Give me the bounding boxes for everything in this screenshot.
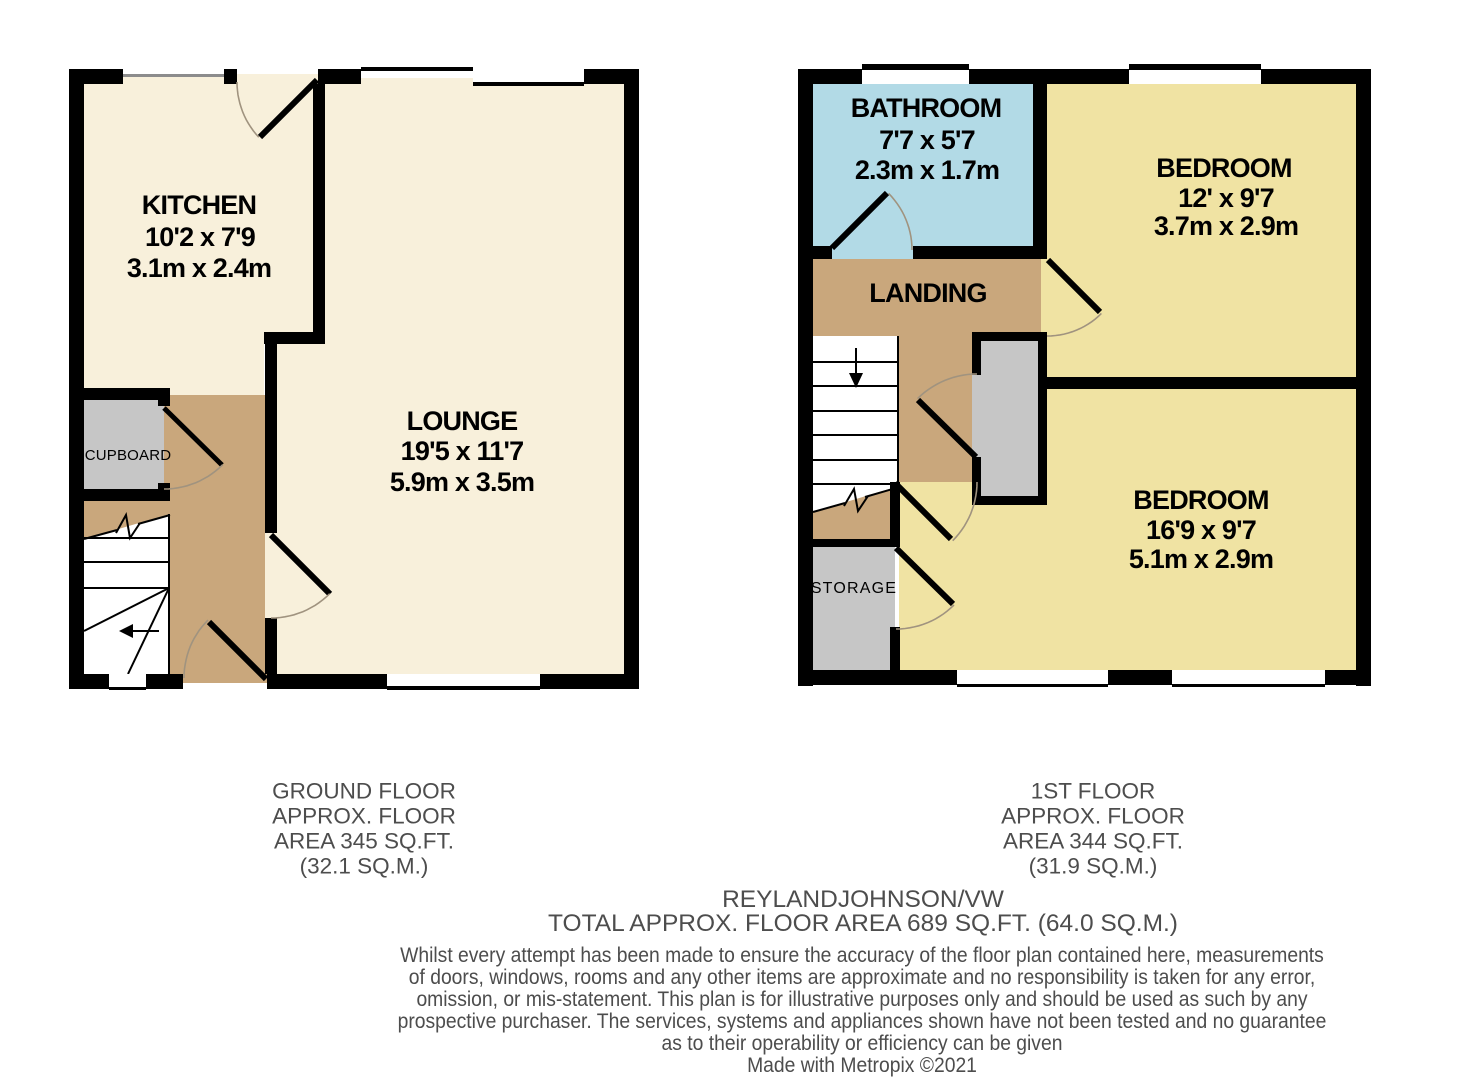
svg-text:2.3m x 1.7m: 2.3m x 1.7m <box>855 155 999 185</box>
svg-text:LANDING: LANDING <box>869 278 986 308</box>
svg-text:APPROX. FLOOR: APPROX. FLOOR <box>1001 804 1185 829</box>
svg-text:5.9m x 3.5m: 5.9m x 3.5m <box>390 467 534 497</box>
svg-text:LOUNGE: LOUNGE <box>407 406 518 436</box>
svg-text:19'5 x 11'7: 19'5 x 11'7 <box>401 436 524 466</box>
svg-text:16'9 x 9'7: 16'9 x 9'7 <box>1146 515 1256 545</box>
svg-text:10'2 x 7'9: 10'2 x 7'9 <box>145 222 256 252</box>
svg-text:7'7 x 5'7: 7'7 x 5'7 <box>879 125 975 155</box>
svg-text:3.7m x 2.9m: 3.7m x 2.9m <box>1154 211 1298 241</box>
svg-text:of doors, windows, rooms and a: of doors, windows, rooms and any other i… <box>409 966 1315 989</box>
svg-text:(32.1 SQ.M.): (32.1 SQ.M.) <box>300 854 429 879</box>
svg-text:KITCHEN: KITCHEN <box>142 190 256 220</box>
svg-text:BEDROOM: BEDROOM <box>1133 485 1268 515</box>
svg-text:REYLANDJOHNSON/VW: REYLANDJOHNSON/VW <box>722 886 1005 913</box>
svg-text:AREA 345 SQ.FT.: AREA 345 SQ.FT. <box>274 829 454 854</box>
svg-text:TOTAL APPROX. FLOOR AREA 689 S: TOTAL APPROX. FLOOR AREA 689 SQ.FT. (64.… <box>548 910 1178 937</box>
svg-text:(31.9 SQ.M.): (31.9 SQ.M.) <box>1029 854 1158 879</box>
svg-text:as to their operability or eff: as to their operability or efficiency ca… <box>662 1032 1063 1055</box>
svg-text:Whilst every attempt has been: Whilst every attempt has been made to en… <box>400 944 1324 967</box>
svg-text:BATHROOM: BATHROOM <box>851 93 1002 123</box>
svg-text:omission, or mis-statement. Th: omission, or mis-statement. This plan is… <box>416 988 1308 1011</box>
svg-text:GROUND FLOOR: GROUND FLOOR <box>272 779 456 804</box>
svg-text:12' x 9'7: 12' x 9'7 <box>1178 183 1274 213</box>
svg-text:APPROX. FLOOR: APPROX. FLOOR <box>272 804 456 829</box>
svg-text:STORAGE: STORAGE <box>811 580 897 597</box>
svg-text:3.1m x 2.4m: 3.1m x 2.4m <box>127 253 271 283</box>
svg-text:1ST FLOOR: 1ST FLOOR <box>1031 779 1156 804</box>
svg-text:5.1m x 2.9m: 5.1m x 2.9m <box>1129 544 1273 574</box>
svg-text:Made with Metropix ©2021: Made with Metropix ©2021 <box>747 1054 977 1077</box>
svg-text:BEDROOM: BEDROOM <box>1156 153 1291 183</box>
svg-text:prospective purchaser. The ser: prospective purchaser. The services, sys… <box>398 1010 1327 1033</box>
svg-text:AREA 344 SQ.FT.: AREA 344 SQ.FT. <box>1003 829 1183 854</box>
svg-text:CUPBOARD: CUPBOARD <box>85 447 172 464</box>
